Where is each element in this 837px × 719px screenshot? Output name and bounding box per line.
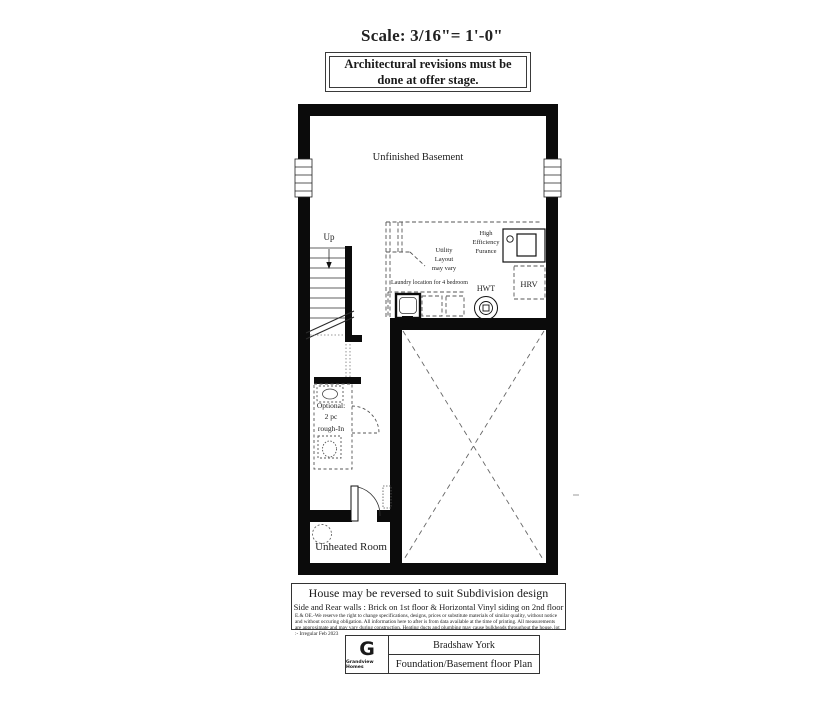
window-right-icon <box>544 159 561 197</box>
stair-hidden-lines <box>310 335 350 377</box>
wall-bath-top <box>314 377 361 384</box>
wall-garage-top <box>390 318 546 330</box>
optional-bath-label: Optional: 2 pc rough-In <box>302 400 360 434</box>
builder-logo: G Grandview Homes <box>346 636 389 673</box>
title-block: G Grandview Homes Bradshaw York Foundati… <box>345 635 540 674</box>
room-label-unfinished-basement: Unfinished Basement <box>338 152 498 165</box>
door-leaf <box>351 486 358 521</box>
wall-garage-left <box>390 318 402 575</box>
wall-bottom <box>298 563 558 575</box>
wall-unheated-right <box>377 510 391 522</box>
window-symbols <box>295 159 561 197</box>
dashed-wall-segment <box>383 486 391 508</box>
notes-box: House may be reversed to suit Subdivisio… <box>291 583 566 630</box>
walls-group <box>298 104 558 575</box>
wall-stair <box>345 246 352 342</box>
wall-unheated-left <box>310 510 352 522</box>
laundry-tub-symbol <box>396 294 420 320</box>
wall-stair-foot <box>345 335 362 342</box>
sheet-title: Foundation/Basement floor Plan <box>389 655 539 673</box>
unexcavated-x-group <box>403 331 544 561</box>
window-left-icon <box>295 159 312 197</box>
stairs-up-label: Up <box>316 232 342 243</box>
builder-logo-letter: G <box>359 640 375 659</box>
title-block-right: Bradshaw York Foundation/Basement floor … <box>389 636 539 673</box>
washer-symbol <box>422 296 442 316</box>
sink-basin-icon <box>323 389 338 399</box>
note-disclaimer: E.& OE.-We reserve the right to change s… <box>295 613 562 638</box>
note-reversal: House may be reversed to suit Subdivisio… <box>292 586 565 601</box>
wall-top <box>298 104 558 116</box>
room-label-unheated-room: Unheated Room <box>302 541 400 554</box>
furnace-label: High Efficiency Furance <box>462 230 510 256</box>
floor-plan-page: Scale: 3/16"= 1'-0" Architectural revisi… <box>0 0 837 719</box>
toilet-symbol <box>318 436 341 458</box>
door-swing-arc <box>358 487 380 516</box>
hrv-label: HRV <box>513 279 545 289</box>
note-walls: Side and Rear walls : Brick on 1st floor… <box>292 602 565 612</box>
toilet-bowl-icon <box>323 441 337 457</box>
builder-company-name: Grandview Homes <box>346 660 388 670</box>
model-name: Bradshaw York <box>389 636 539 655</box>
dryer-symbol <box>446 296 464 316</box>
hwt-symbol <box>475 297 498 320</box>
hwt-label: HWT <box>472 284 500 294</box>
